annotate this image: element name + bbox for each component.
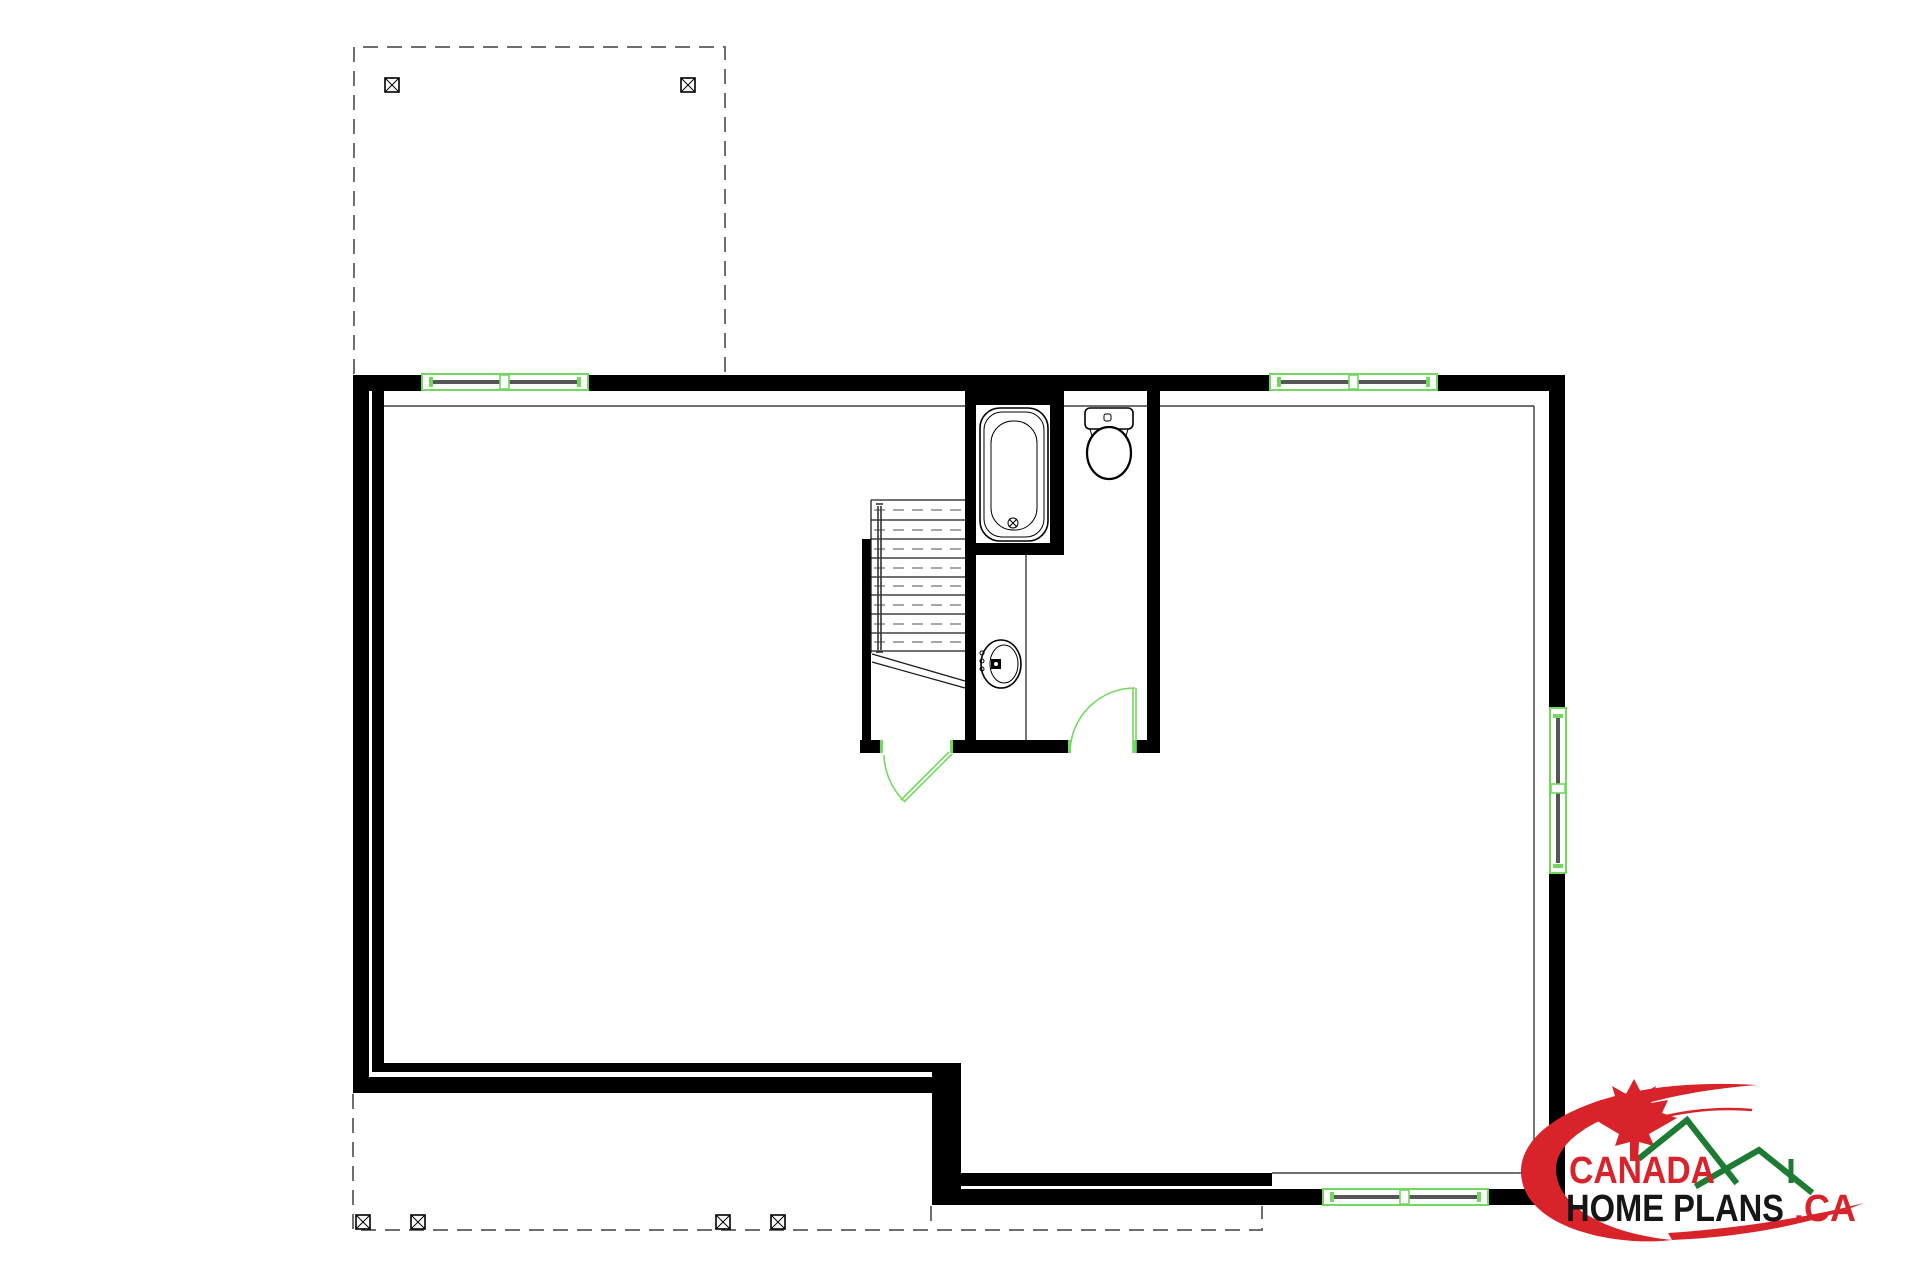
bathtub (980, 408, 1048, 541)
stair-handrail (876, 504, 883, 652)
logo-text-ca-suffix: .CA (1794, 1188, 1856, 1230)
floor-plan-drawing: CANADA HOME PLANS .CA (0, 0, 1920, 1280)
interior-face-lines (384, 406, 1534, 1173)
deck-post-marker (385, 78, 399, 92)
logo-text-canada: CANADA (1569, 1150, 1715, 1192)
window-right-wall (1550, 708, 1566, 873)
lower-deck-outline (353, 1094, 1262, 1230)
deck-post-marker (681, 78, 695, 92)
toilet (1085, 408, 1133, 479)
bathroom-door (1068, 688, 1136, 753)
deck-post-marker (411, 1215, 425, 1229)
brand-logo: CANADA HOME PLANS .CA (1521, 1079, 1864, 1241)
window-top-left (422, 374, 588, 390)
stair-break-lines (872, 654, 965, 688)
staircase (871, 500, 965, 688)
upper-deck-outline (354, 47, 725, 374)
bathroom-sink (980, 640, 1021, 688)
logo-text-home-plans: HOME PLANS (1566, 1188, 1784, 1230)
deck-post-marker (716, 1215, 730, 1229)
floor-plan-page: CANADA HOME PLANS .CA (0, 0, 1920, 1280)
deck-post-marker (356, 1215, 370, 1229)
deck-post-marker (771, 1215, 785, 1229)
window-bottom-wall (1323, 1189, 1488, 1205)
window-top-right (1270, 374, 1437, 390)
stair-hall-door (880, 740, 953, 802)
